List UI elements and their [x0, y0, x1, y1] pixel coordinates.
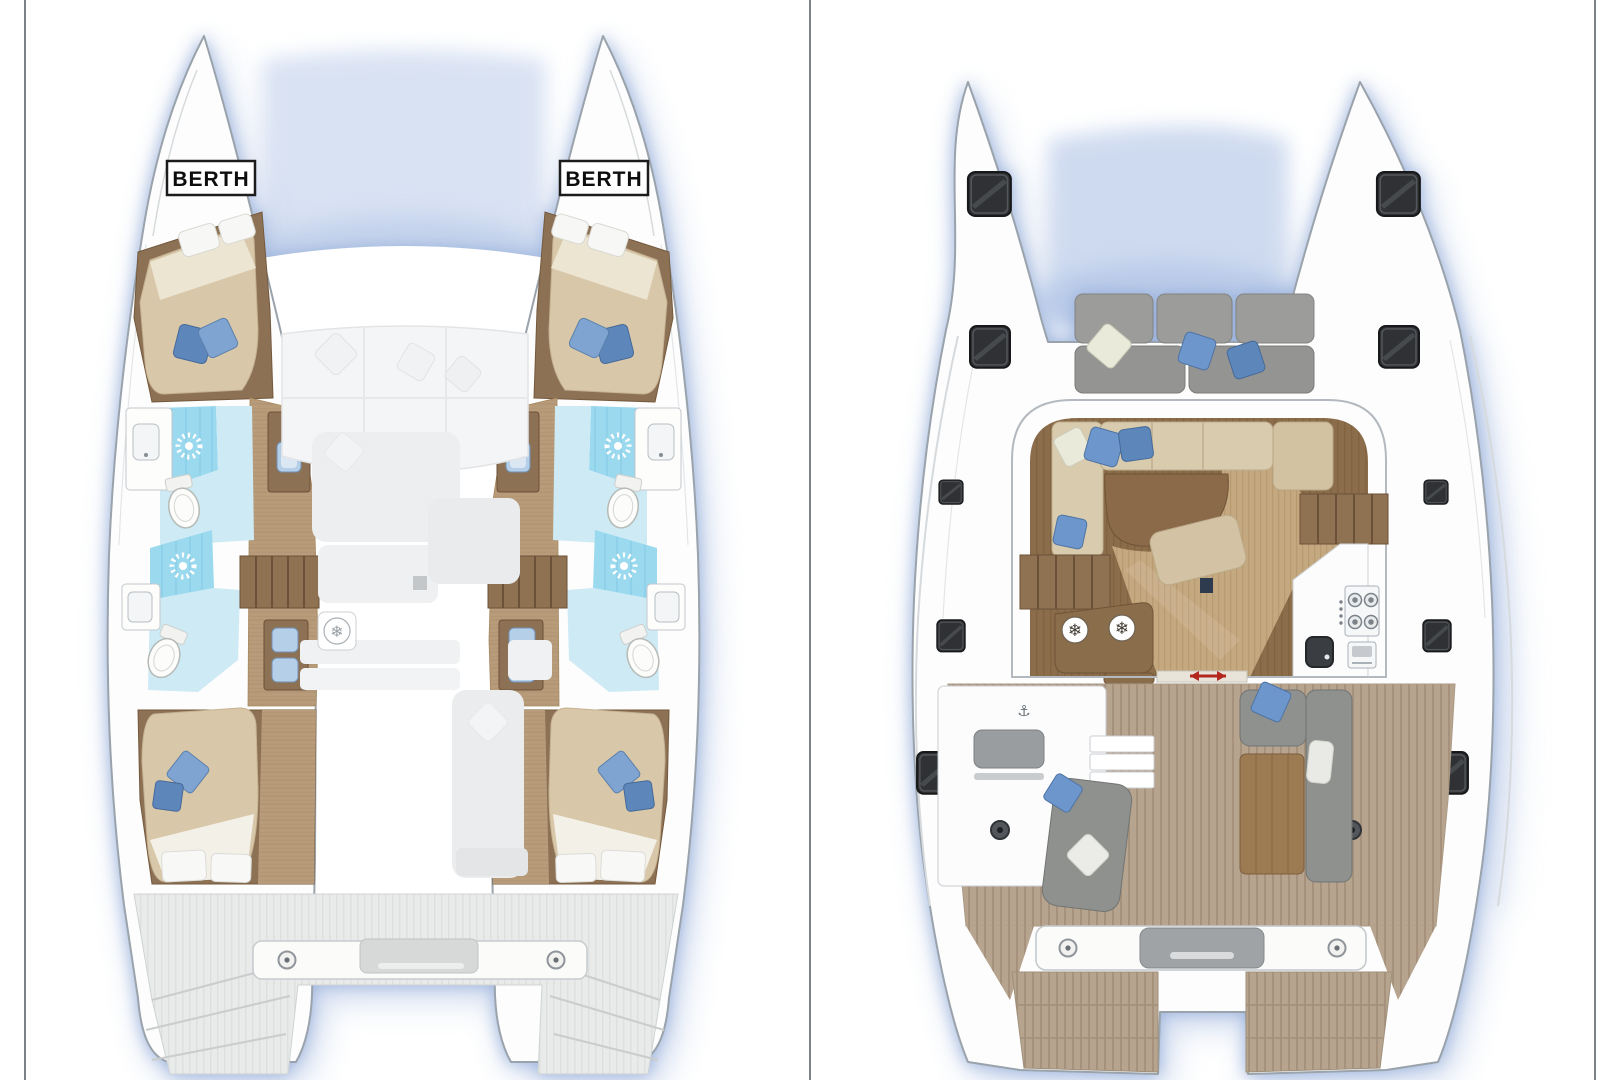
berth-label-starboard-text: BERTH [565, 168, 642, 191]
galley-fridge-counter [1055, 603, 1154, 684]
lower-deck-panel: BERTH BERTH ❄ [108, 36, 700, 1074]
fridge-snowflake-icon: ❄ [330, 622, 343, 641]
pillow-blue [1118, 426, 1154, 462]
cockpit-steps [1090, 736, 1154, 788]
floor-plan-canvas: BERTH BERTH ❄ [0, 0, 1620, 1080]
stairs-to-port-hull [1020, 555, 1110, 609]
pad-handle [378, 963, 464, 969]
aft-deck [134, 894, 678, 1074]
berth-label-port: BERTH [167, 161, 255, 195]
oven-display [1352, 646, 1372, 657]
crossbeam-pad [1140, 928, 1264, 968]
swim-platform [1246, 972, 1392, 1072]
floor-plan-page: BERTH BERTH ❄ [0, 0, 1620, 1080]
galley-sink [1306, 637, 1333, 667]
speaker-dot [997, 827, 1003, 833]
berth-label-starboard: BERTH [560, 161, 648, 195]
pillow-white [1306, 740, 1334, 784]
berth-label-port-text: BERTH [172, 168, 249, 191]
stairs-to-starboard-hull [1300, 494, 1388, 544]
anchor-icon: ⚓ [1017, 702, 1030, 720]
freezer-snowflake-icon: ❄ [1115, 619, 1129, 639]
main-deck-panel: ⚓ [913, 82, 1513, 1074]
pad-handle [1170, 952, 1234, 959]
aft-cockpit: ⚓ [938, 681, 1455, 926]
bench-shadow [974, 773, 1044, 780]
fridge-snowflake-icon: ❄ [1068, 621, 1082, 641]
forward-cockpit [1075, 294, 1314, 393]
floor-hatch-handle [1200, 578, 1213, 593]
faucet [1325, 655, 1330, 660]
salon-seat-right [1273, 422, 1333, 490]
helm-bench [974, 730, 1044, 768]
salon [1012, 400, 1388, 684]
pillow-blue [1052, 514, 1088, 550]
swim-platform [1012, 972, 1158, 1072]
